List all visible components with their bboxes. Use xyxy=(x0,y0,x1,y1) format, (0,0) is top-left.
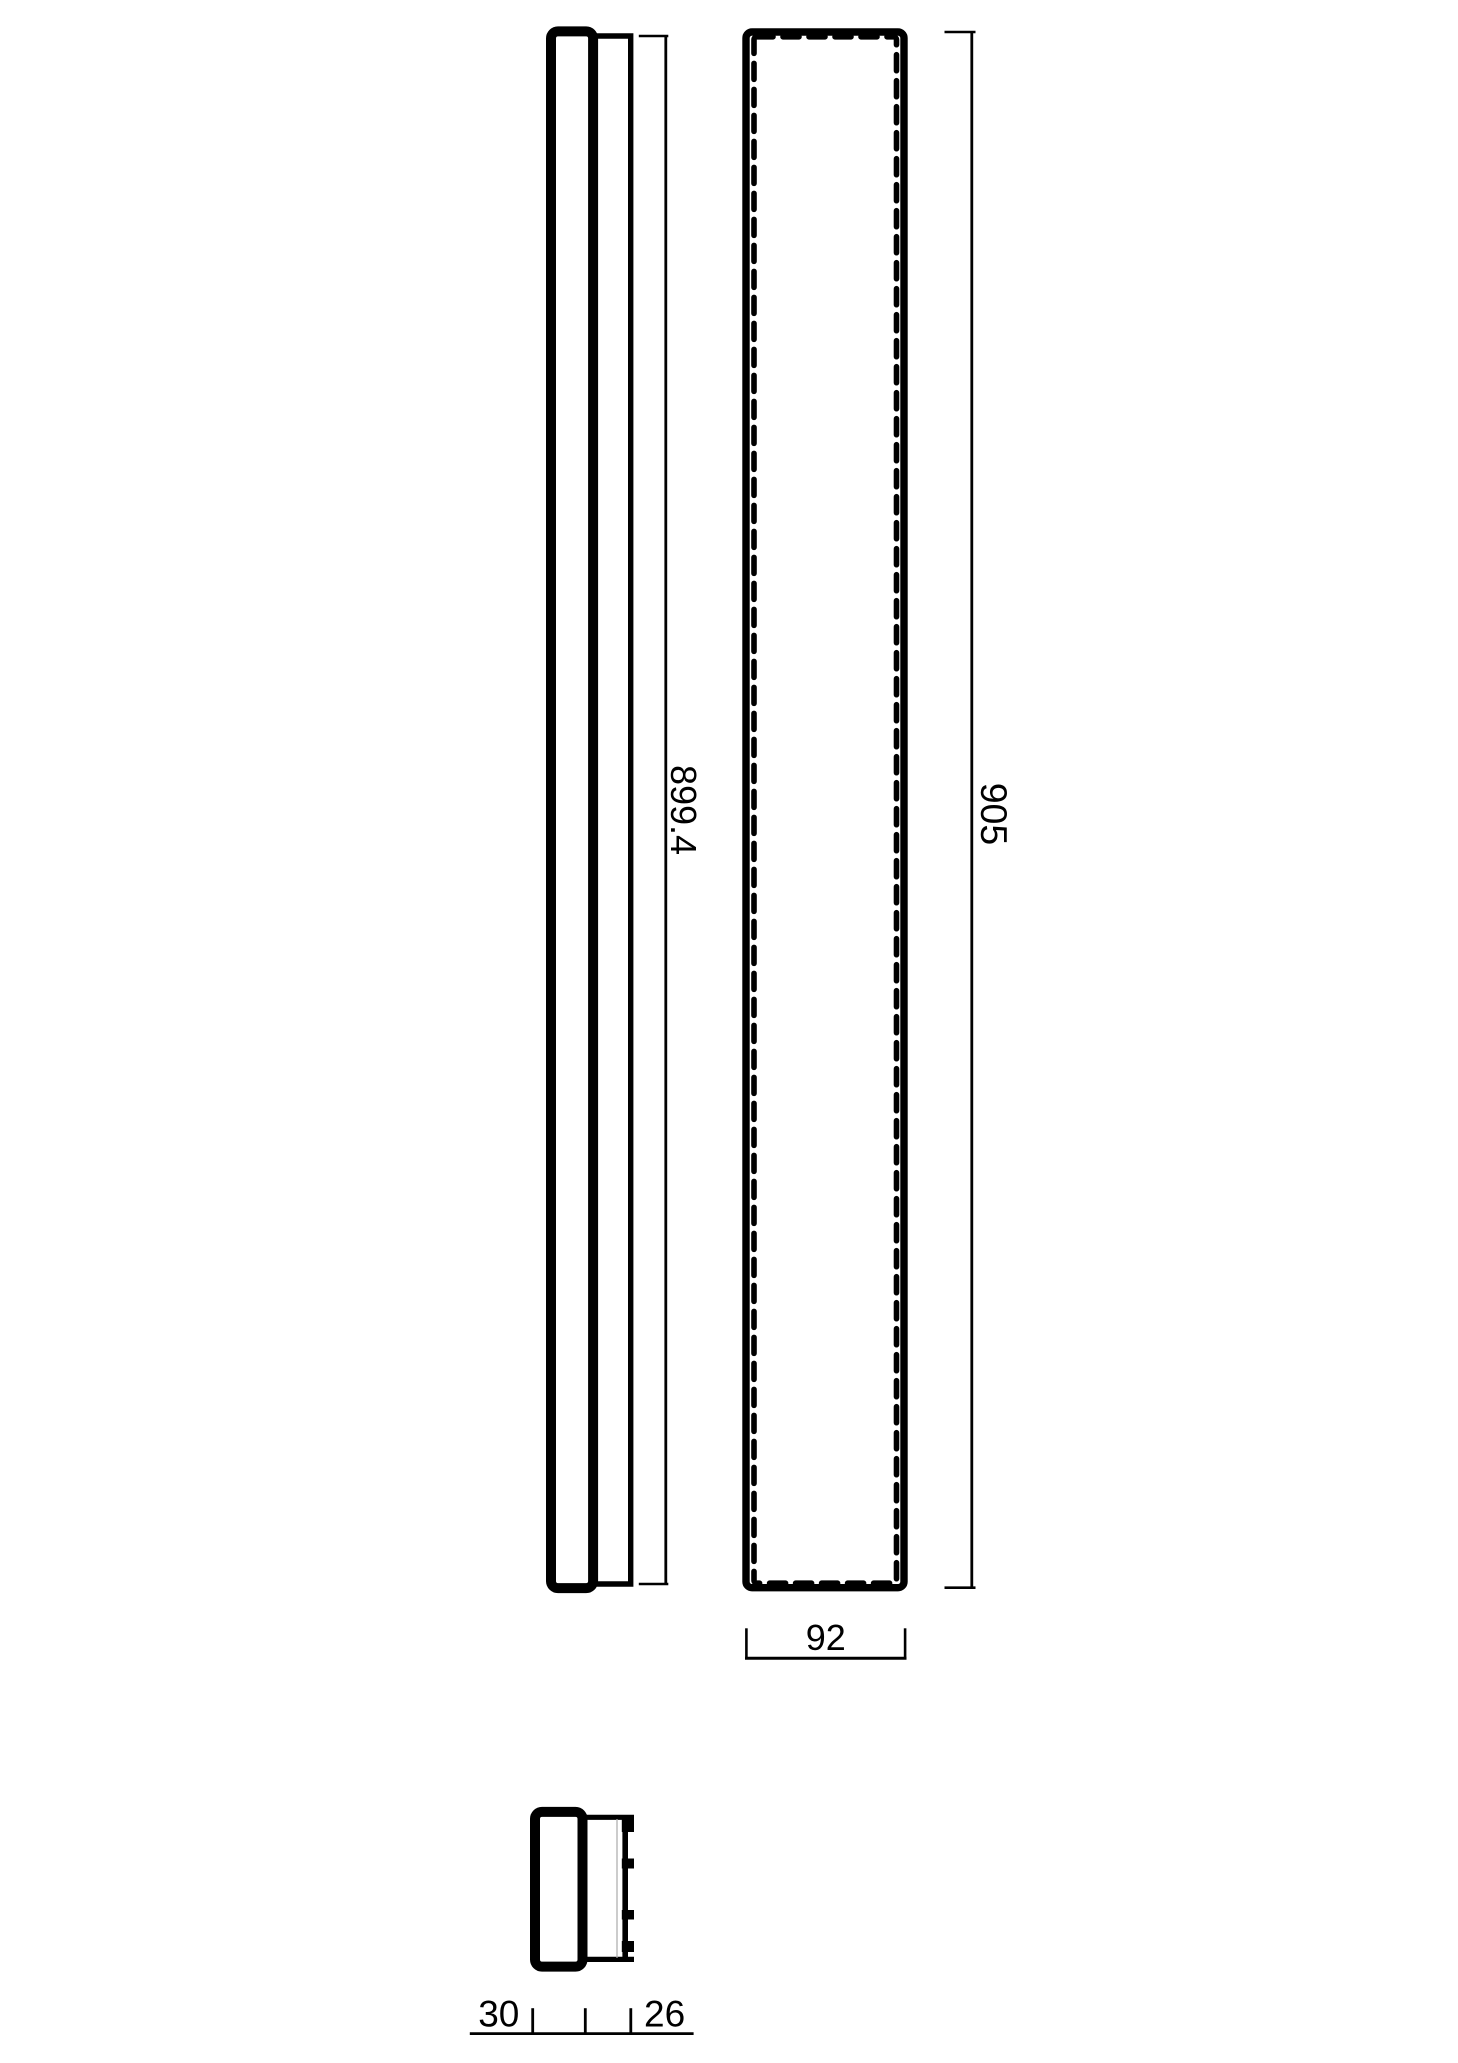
svg-text:92: 92 xyxy=(806,1617,846,1658)
svg-text:905: 905 xyxy=(973,783,1015,846)
svg-text:899.4: 899.4 xyxy=(663,765,704,855)
svg-text:26: 26 xyxy=(644,1994,685,2035)
svg-text:30: 30 xyxy=(478,1994,519,2035)
